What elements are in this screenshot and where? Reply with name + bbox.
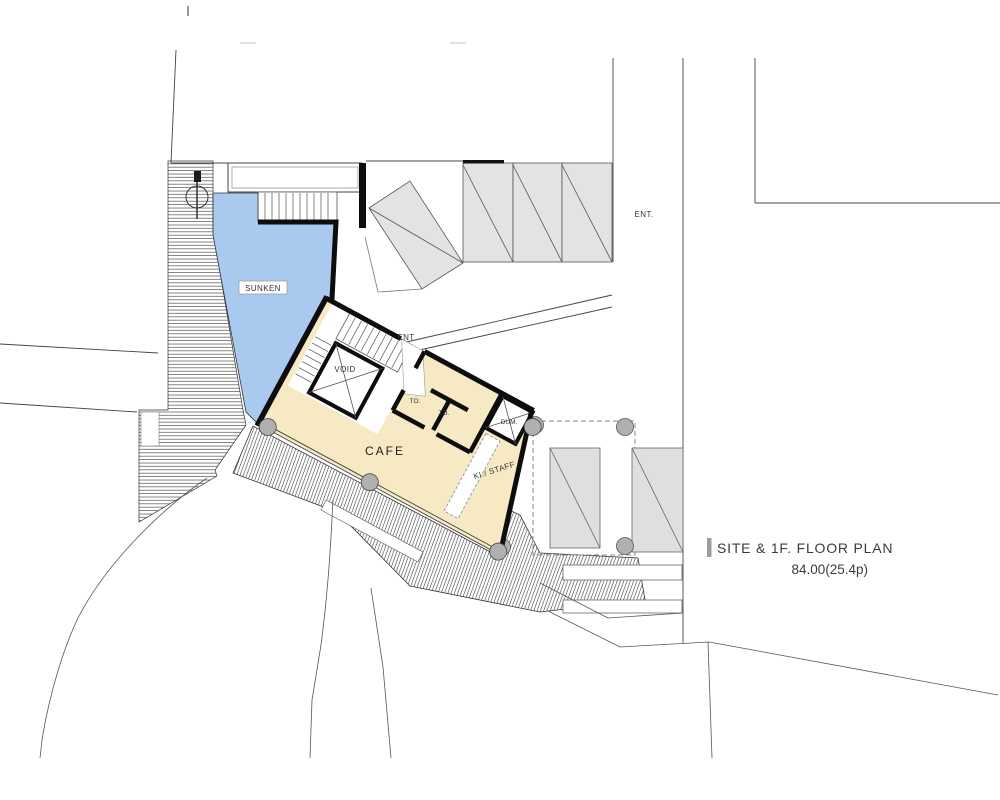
title-accent-bar xyxy=(707,538,712,557)
terrace-step xyxy=(563,565,682,580)
drawing-area: 84.00(25.4p) xyxy=(791,562,868,577)
toilet-label: TO. xyxy=(439,410,450,417)
wall-stub xyxy=(463,160,504,164)
void-label: VOID xyxy=(334,365,355,374)
terrace-step xyxy=(563,600,682,613)
ent-building-label: ENT xyxy=(397,333,414,342)
column xyxy=(617,538,634,555)
site-floor-plan-drawing: SUNKEN xyxy=(0,0,1000,800)
floor-plan-page: SUNKEN xyxy=(0,0,1000,800)
wall-bar xyxy=(359,163,366,228)
tilted-roof xyxy=(369,181,463,289)
title-block: SITE & 1F. FLOOR PLAN 84.00(25.4p) xyxy=(707,538,893,577)
sunken-label: SUNKEN xyxy=(245,284,281,293)
neighbor-roofs xyxy=(365,160,612,292)
exterior-stair xyxy=(258,192,337,222)
column xyxy=(617,419,634,436)
dumbwaiter-label: DUM. xyxy=(501,419,518,426)
cafe-label: CAFE xyxy=(365,444,405,458)
hatch-notch xyxy=(141,412,159,446)
toilet-label: TO. xyxy=(410,398,421,405)
ent-road-label: ENT. xyxy=(635,210,654,219)
drawing-title: SITE & 1F. FLOOR PLAN xyxy=(717,540,893,556)
entrance-walkway xyxy=(402,295,612,353)
